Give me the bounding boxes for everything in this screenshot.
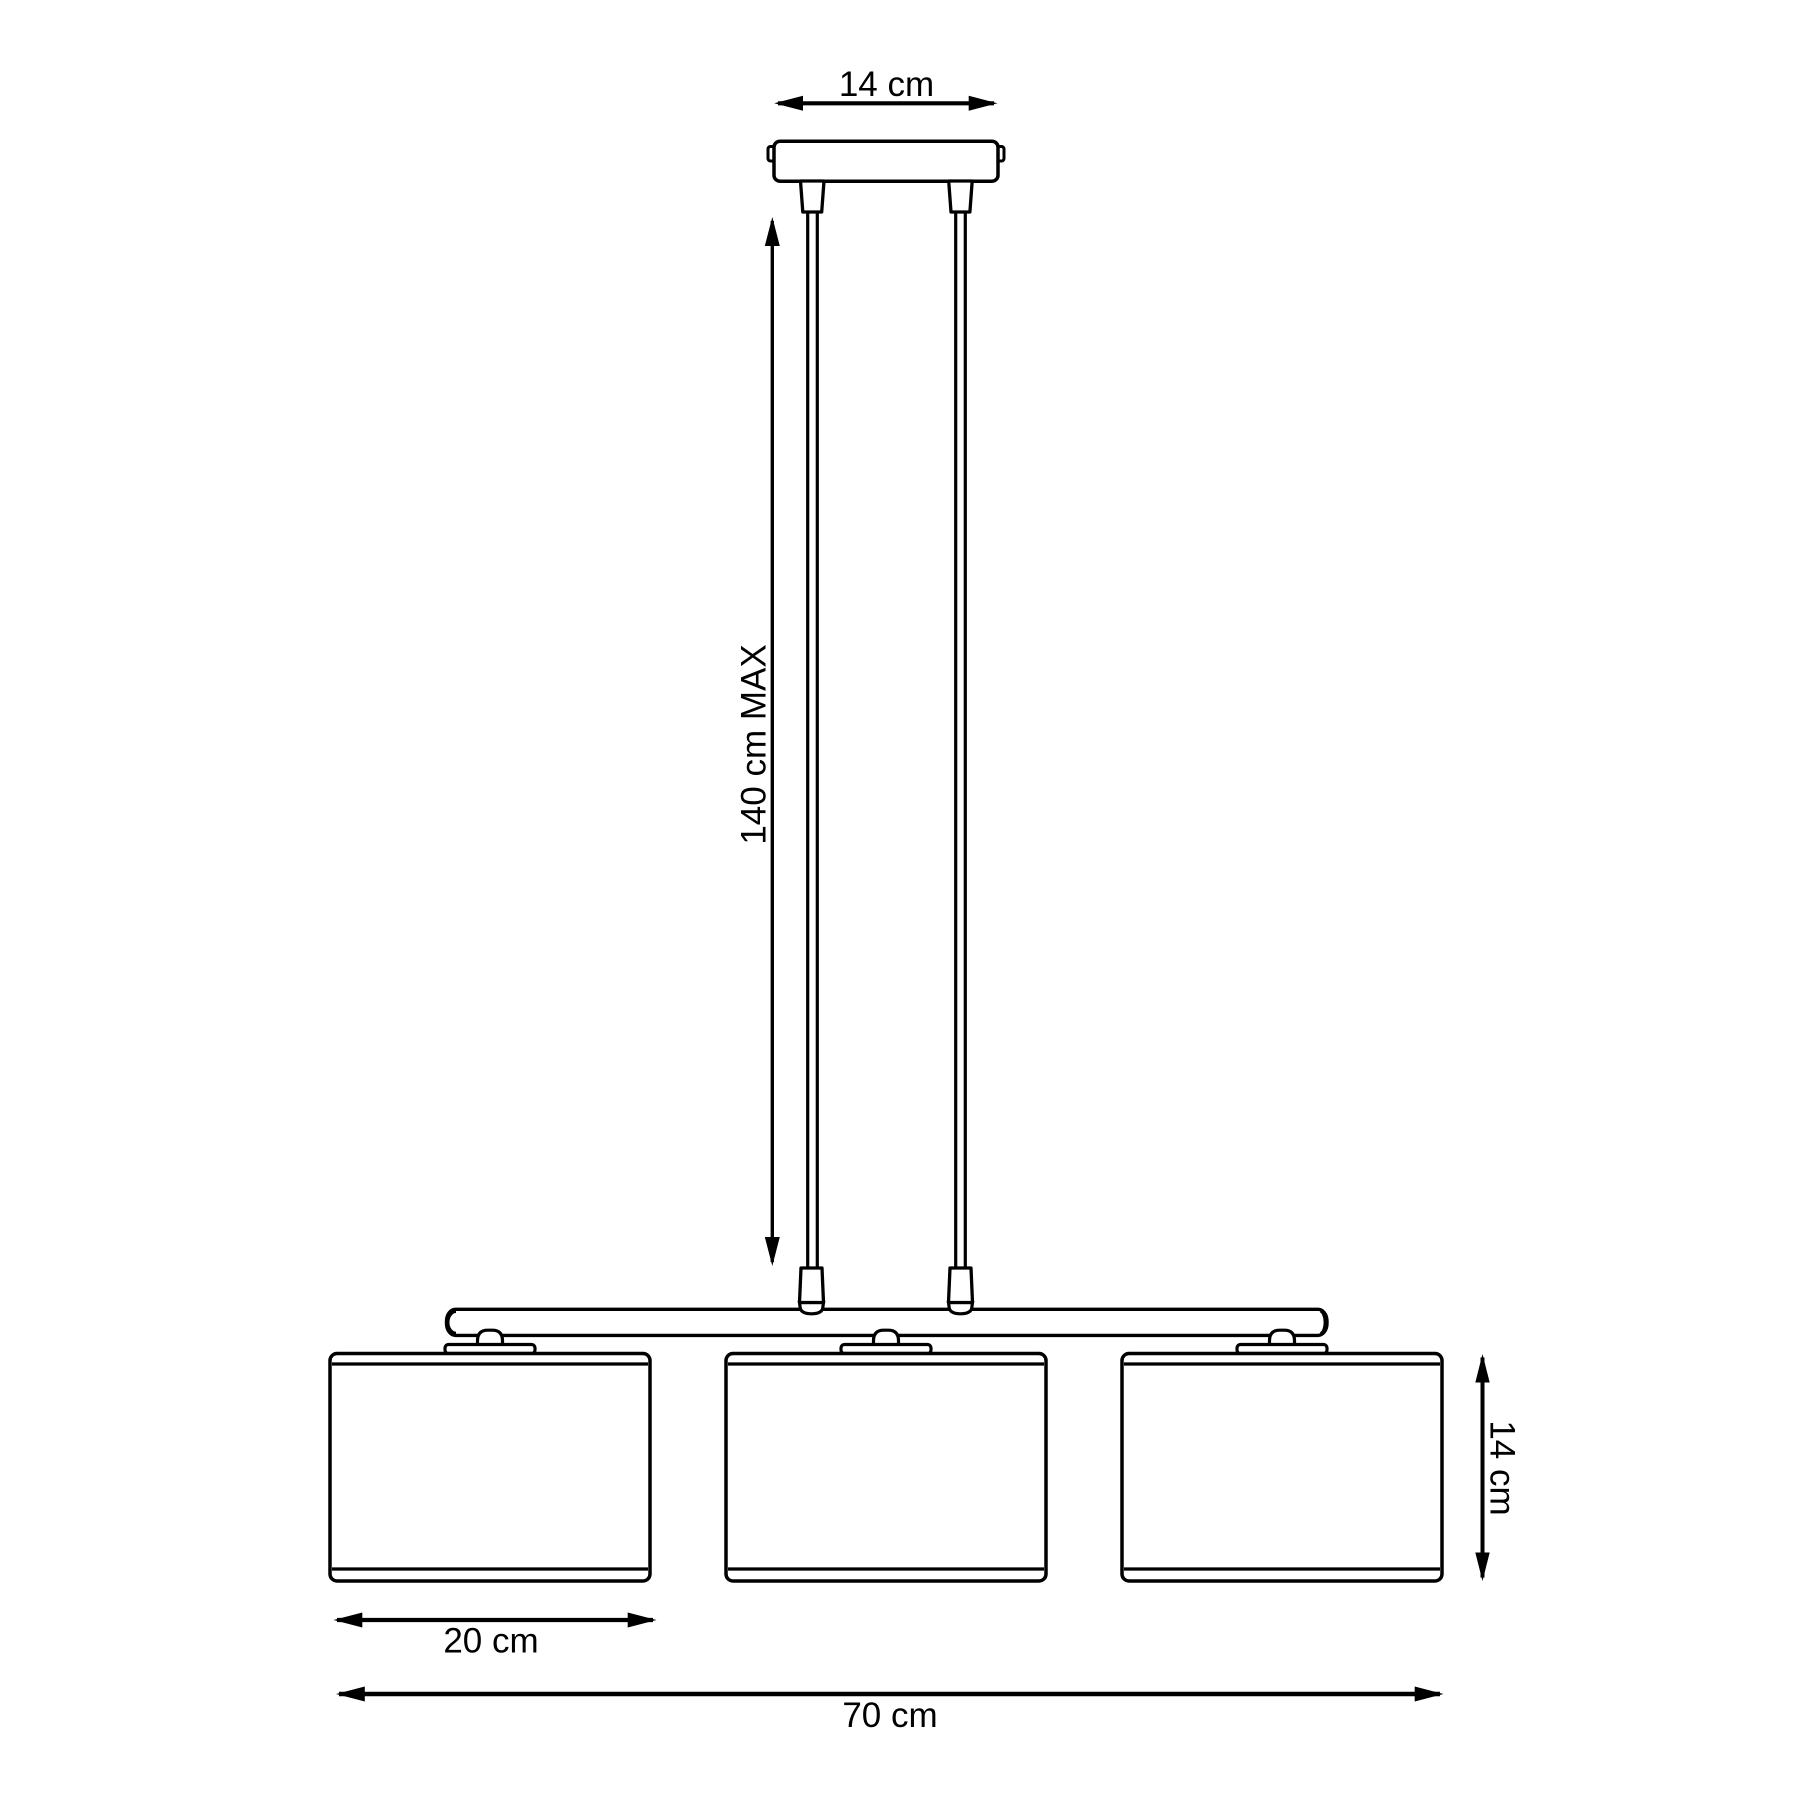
svg-text:70 cm: 70 cm (842, 1696, 937, 1735)
svg-text:14 cm: 14 cm (839, 65, 934, 104)
svg-text:140 cm MAX: 140 cm MAX (735, 644, 774, 844)
svg-text:14 cm: 14 cm (1483, 1420, 1522, 1515)
svg-text:20 cm: 20 cm (443, 1622, 538, 1661)
